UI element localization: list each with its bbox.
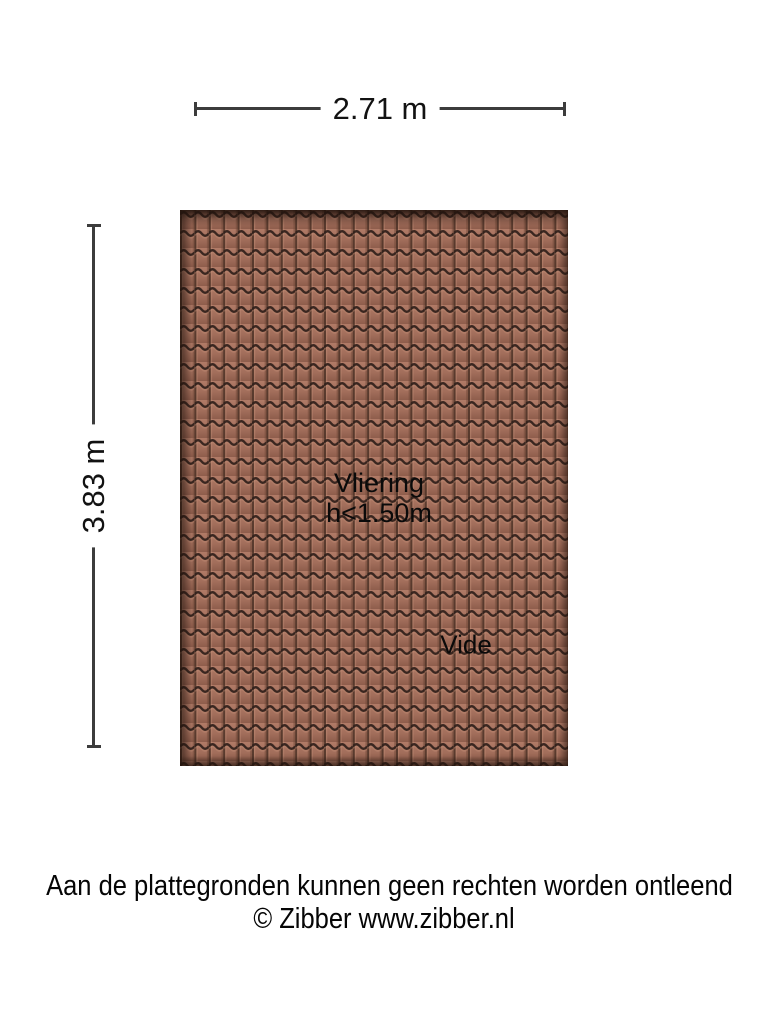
copyright-text: © Zibber www.zibber.nl — [46, 903, 722, 936]
width-dimension-label: 2.71 m — [321, 91, 440, 127]
height-dimension-tick-top — [87, 224, 101, 227]
room-height-note: h<1.50m — [326, 498, 432, 528]
attic-roof-plan: Vliering h<1.50m Vide — [180, 210, 568, 766]
width-dimension-tick-right — [563, 102, 566, 116]
room-label-vide: Vide — [440, 630, 492, 661]
width-dimension-tick-left — [194, 102, 197, 116]
height-dimension: 3.83 m — [79, 224, 109, 748]
height-dimension-label: 3.83 m — [76, 425, 112, 548]
room-label-vliering: Vliering h<1.50m — [326, 468, 432, 528]
footer: Aan de plattegronden kunnen geen rechten… — [0, 870, 768, 936]
disclaimer-text: Aan de plattegronden kunnen geen rechten… — [46, 870, 722, 903]
floorplan-page: 2.71 m 3.83 m — [0, 0, 768, 1024]
width-dimension: 2.71 m — [194, 94, 566, 124]
room-name: Vliering — [326, 468, 432, 498]
height-dimension-tick-bottom — [87, 745, 101, 748]
